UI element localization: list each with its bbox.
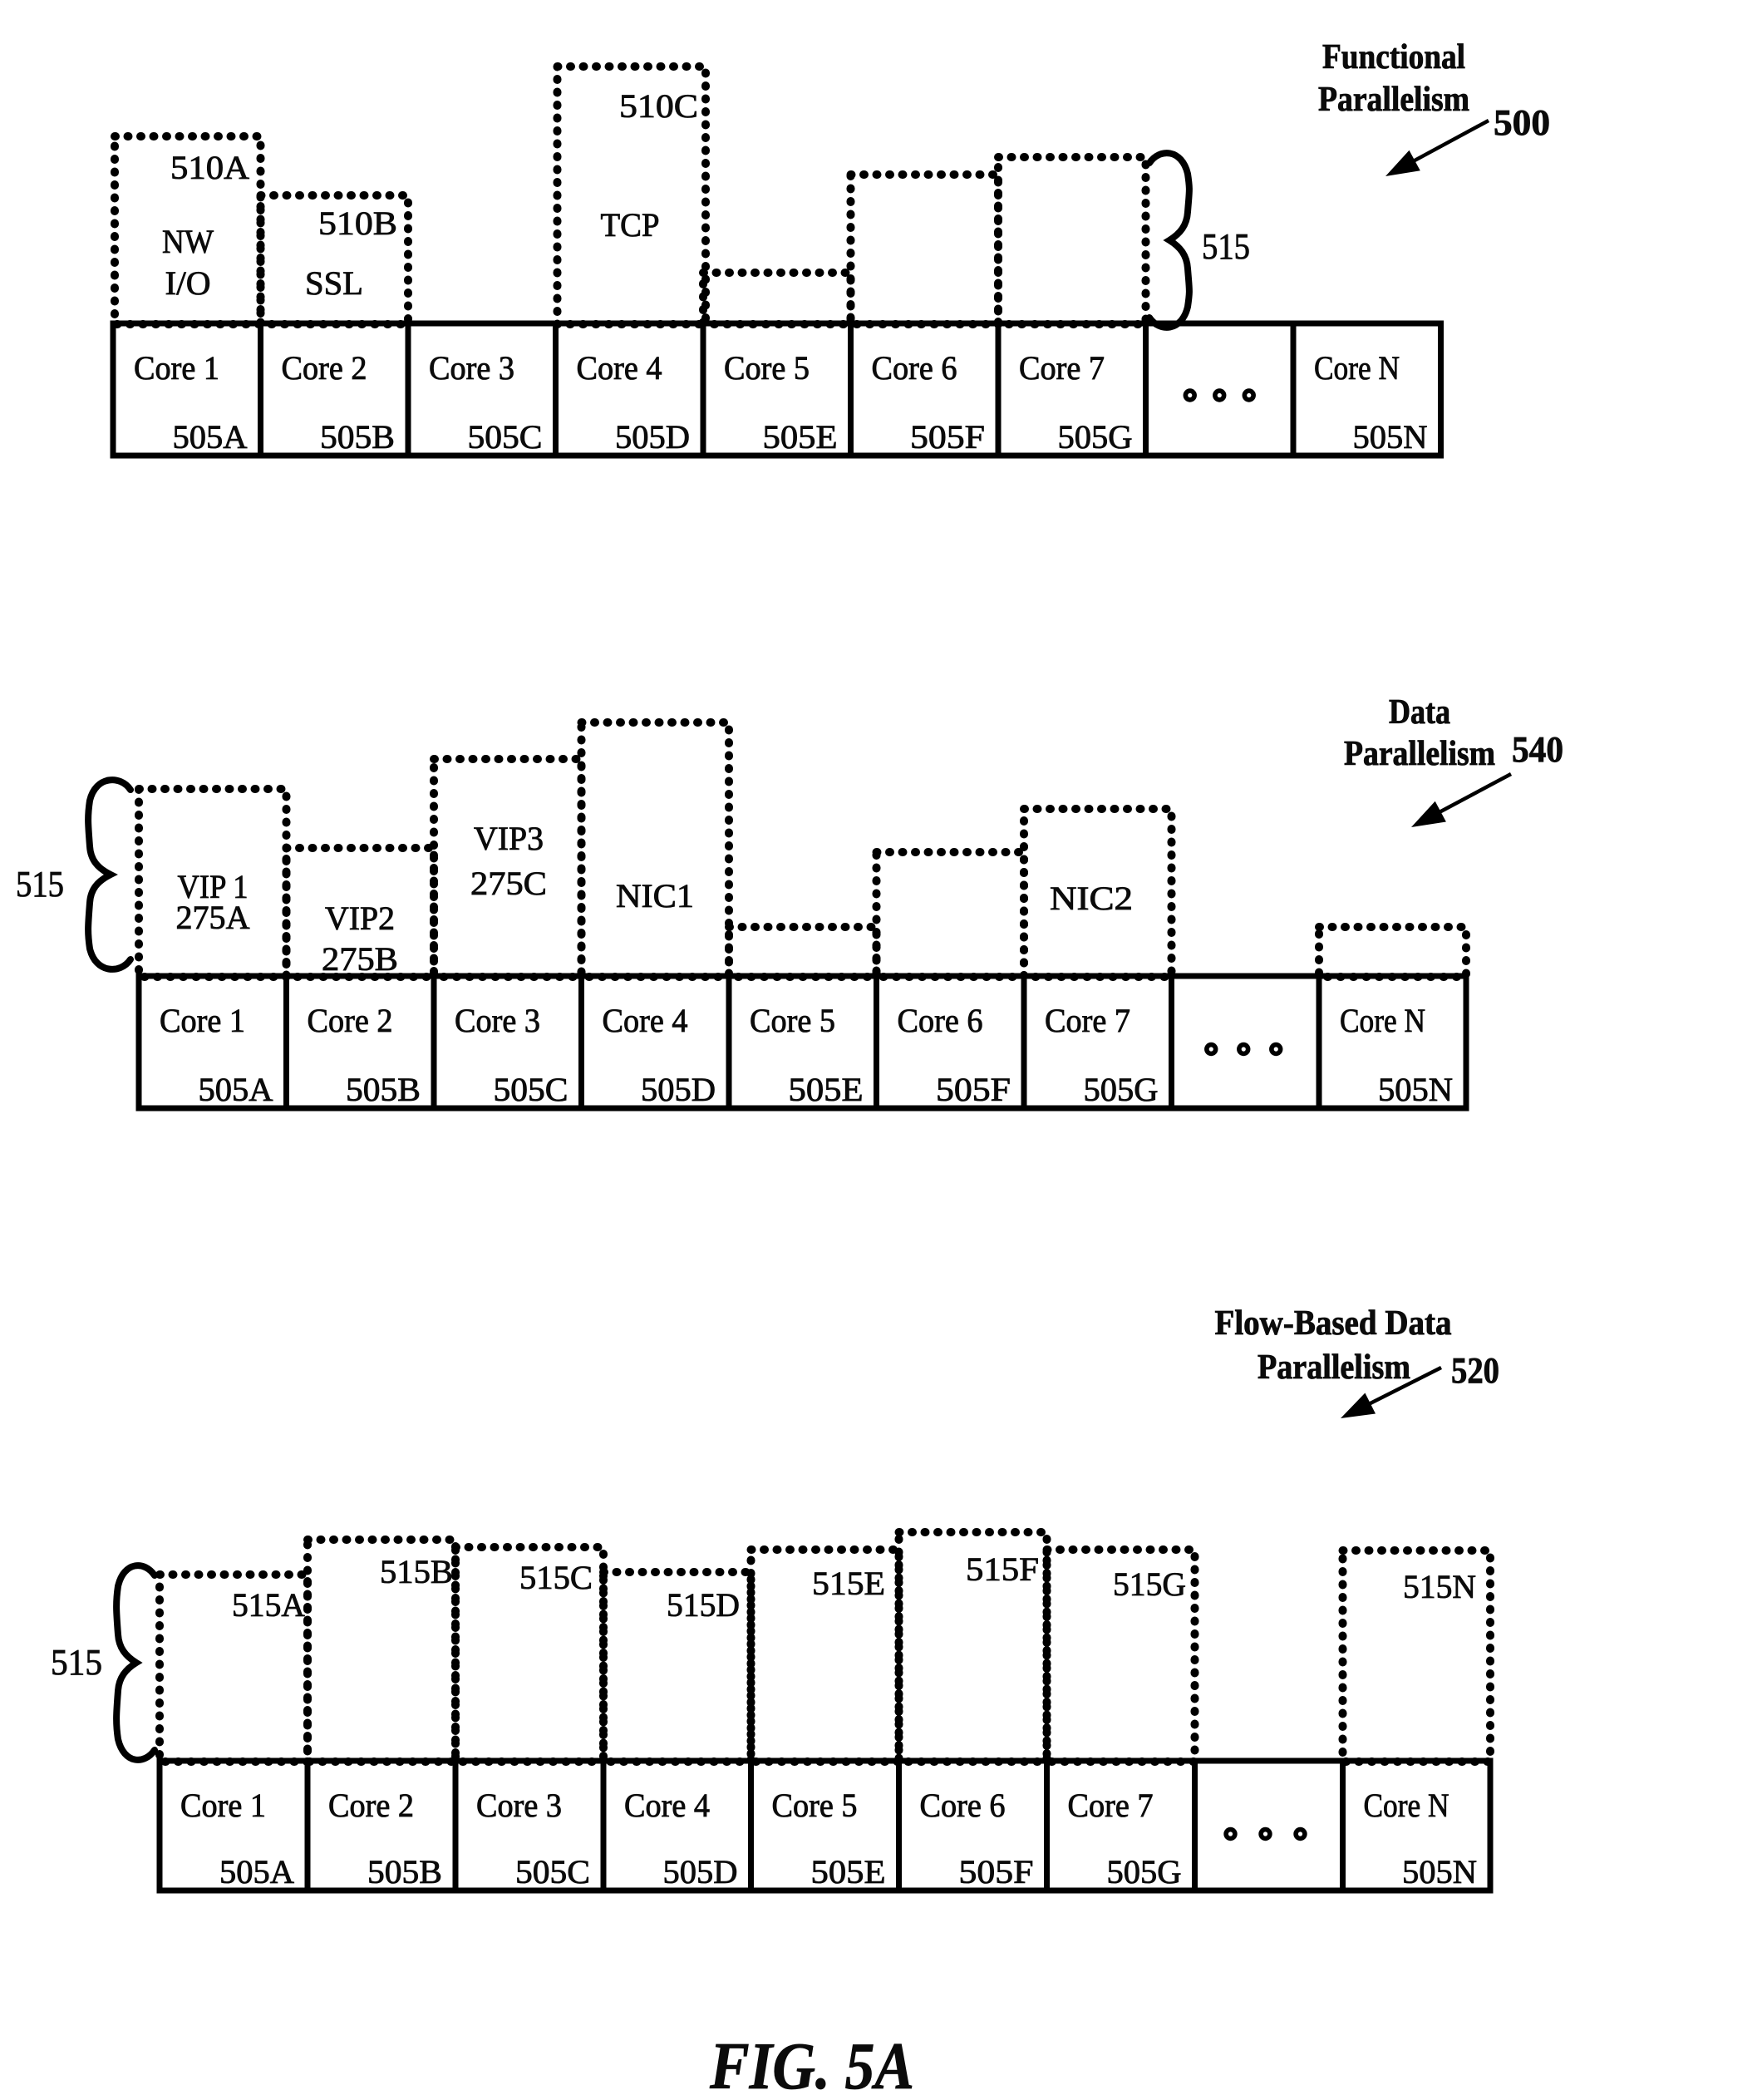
svg-text:Parallelism: Parallelism [1344, 735, 1495, 773]
svg-text:NIC1: NIC1 [616, 877, 694, 914]
svg-text:Data: Data [1389, 693, 1450, 732]
svg-text:510A: 510A [170, 149, 249, 186]
svg-text:505G: 505G [1084, 1071, 1159, 1108]
svg-text:275A: 275A [176, 899, 250, 936]
svg-text:505B: 505B [346, 1071, 421, 1108]
svg-text:505F: 505F [910, 418, 985, 456]
svg-text:Core 6: Core 6 [898, 1002, 983, 1039]
svg-text:515E: 515E [812, 1565, 885, 1602]
svg-text:505N: 505N [1402, 1853, 1477, 1890]
svg-text:Core 4: Core 4 [624, 1787, 710, 1824]
svg-text:Core 3: Core 3 [429, 349, 514, 387]
svg-text:VIP3: VIP3 [474, 820, 544, 857]
svg-text:Core 4: Core 4 [577, 349, 662, 387]
svg-text:515: 515 [1202, 226, 1250, 267]
svg-text:505A: 505A [219, 1853, 294, 1890]
svg-text:505D: 505D [641, 1071, 716, 1108]
svg-text:Core 5: Core 5 [772, 1787, 858, 1824]
svg-text:505F: 505F [959, 1853, 1034, 1890]
svg-text:515F: 515F [966, 1550, 1039, 1588]
svg-text:505A: 505A [173, 418, 248, 456]
svg-text:505D: 505D [663, 1853, 738, 1890]
svg-text:505F: 505F [936, 1071, 1011, 1108]
svg-text:Core 1: Core 1 [160, 1002, 245, 1039]
svg-text:515C: 515C [519, 1559, 593, 1596]
svg-text:Core 1: Core 1 [134, 349, 219, 387]
svg-text:275B: 275B [322, 940, 398, 978]
svg-text:515: 515 [51, 1642, 102, 1683]
svg-text:NW: NW [162, 223, 214, 260]
svg-text:505G: 505G [1058, 418, 1133, 456]
svg-text:500: 500 [1494, 102, 1550, 143]
svg-text:Parallelism: Parallelism [1258, 1348, 1410, 1387]
svg-text:540: 540 [1512, 729, 1563, 770]
svg-text:Core N: Core N [1314, 349, 1400, 387]
svg-text:Core 2: Core 2 [328, 1787, 414, 1824]
svg-text:505N: 505N [1353, 418, 1428, 456]
svg-text:505B: 505B [367, 1853, 442, 1890]
svg-text:Core 7: Core 7 [1045, 1002, 1130, 1039]
svg-text:Core 5: Core 5 [750, 1002, 835, 1039]
svg-text:Core 2: Core 2 [308, 1002, 393, 1039]
svg-text:TCP: TCP [601, 206, 660, 244]
svg-text:505E: 505E [763, 418, 838, 456]
svg-text:515D: 515D [667, 1586, 740, 1624]
svg-text:Parallelism: Parallelism [1318, 81, 1469, 119]
svg-text:FIG. 5A: FIG. 5A [709, 2030, 914, 2100]
svg-text:510C: 510C [619, 87, 698, 125]
svg-text:Flow-Based Data: Flow-Based Data [1215, 1304, 1452, 1343]
svg-text:Core 7: Core 7 [1068, 1787, 1154, 1824]
svg-text:520: 520 [1451, 1350, 1499, 1391]
svg-text:505C: 505C [468, 418, 543, 456]
svg-text:Core 1: Core 1 [180, 1787, 266, 1824]
svg-text:515N: 515N [1403, 1568, 1476, 1605]
svg-text:505N: 505N [1378, 1071, 1453, 1108]
svg-text:505E: 505E [789, 1071, 864, 1108]
svg-text:Functional: Functional [1322, 38, 1465, 76]
svg-text:Core 3: Core 3 [476, 1787, 562, 1824]
svg-text:I/O: I/O [165, 264, 211, 302]
svg-text:Core 7: Core 7 [1019, 349, 1105, 387]
svg-text:505E: 505E [811, 1853, 886, 1890]
svg-text:Core 3: Core 3 [455, 1002, 540, 1039]
svg-text:275C: 275C [470, 865, 547, 902]
svg-text:515G: 515G [1113, 1565, 1186, 1603]
svg-text:Core 6: Core 6 [872, 349, 957, 387]
svg-text:SSL: SSL [305, 264, 363, 302]
svg-text:Core N: Core N [1340, 1002, 1425, 1039]
svg-text:VIP2: VIP2 [325, 900, 395, 937]
svg-text:505C: 505C [494, 1071, 568, 1108]
svg-text:505D: 505D [615, 418, 690, 456]
svg-text:505B: 505B [320, 418, 395, 456]
svg-text:Core 6: Core 6 [920, 1787, 1006, 1824]
svg-text:NIC2: NIC2 [1050, 880, 1133, 917]
svg-text:510B: 510B [318, 205, 397, 242]
svg-text:515A: 515A [232, 1586, 305, 1624]
svg-text:Core 4: Core 4 [603, 1002, 688, 1039]
svg-text:515: 515 [16, 864, 64, 905]
svg-text:515B: 515B [380, 1553, 453, 1590]
svg-text:505A: 505A [199, 1071, 273, 1108]
svg-text:Core 2: Core 2 [282, 349, 367, 387]
svg-text:505C: 505C [515, 1853, 590, 1890]
svg-text:Core 5: Core 5 [724, 349, 810, 387]
svg-text:Core N: Core N [1364, 1787, 1449, 1824]
svg-text:505G: 505G [1107, 1853, 1182, 1890]
